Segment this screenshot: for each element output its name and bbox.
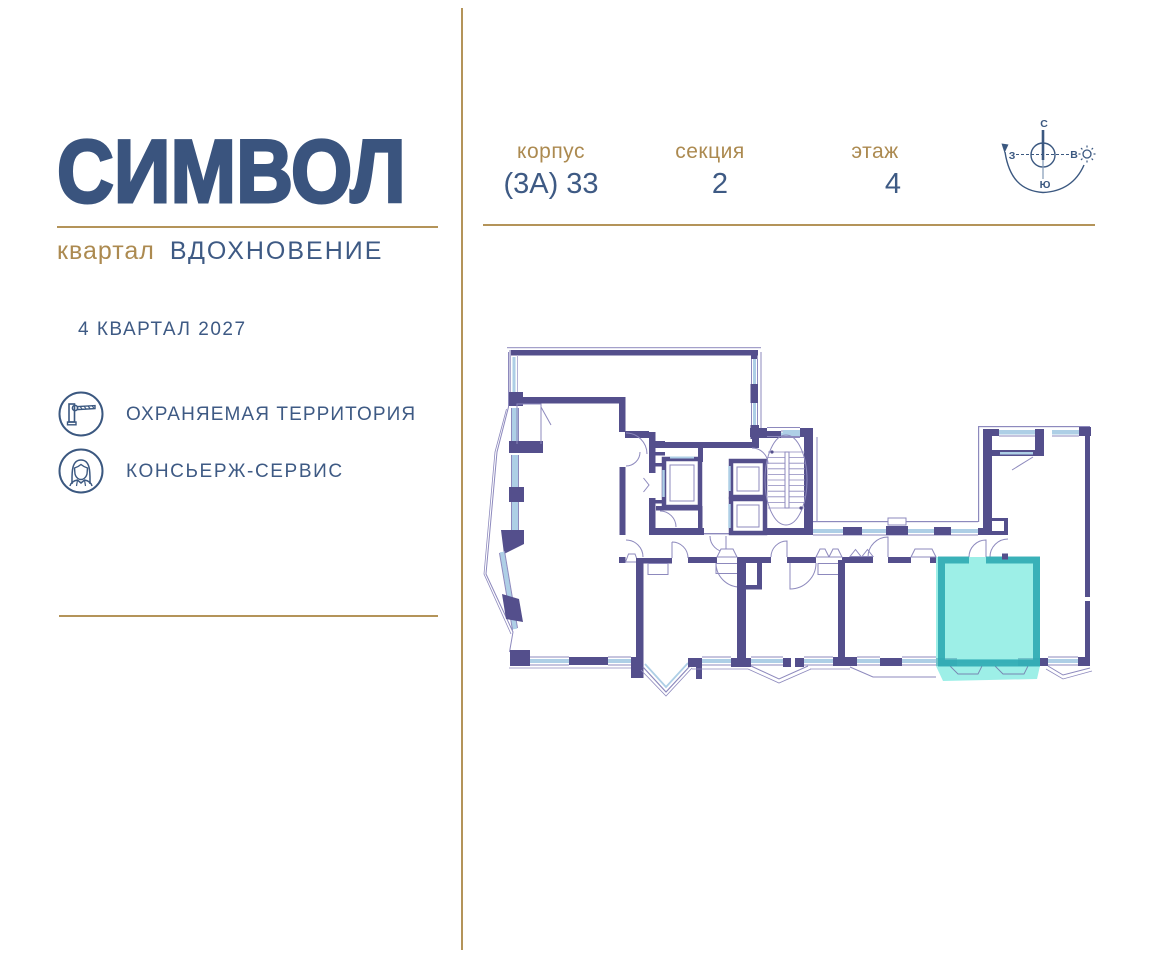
svg-text:С: С [1040, 118, 1048, 130]
svg-text:В: В [1070, 149, 1078, 161]
svg-text:З: З [1009, 150, 1016, 162]
svg-text:Ю: Ю [1040, 179, 1051, 191]
